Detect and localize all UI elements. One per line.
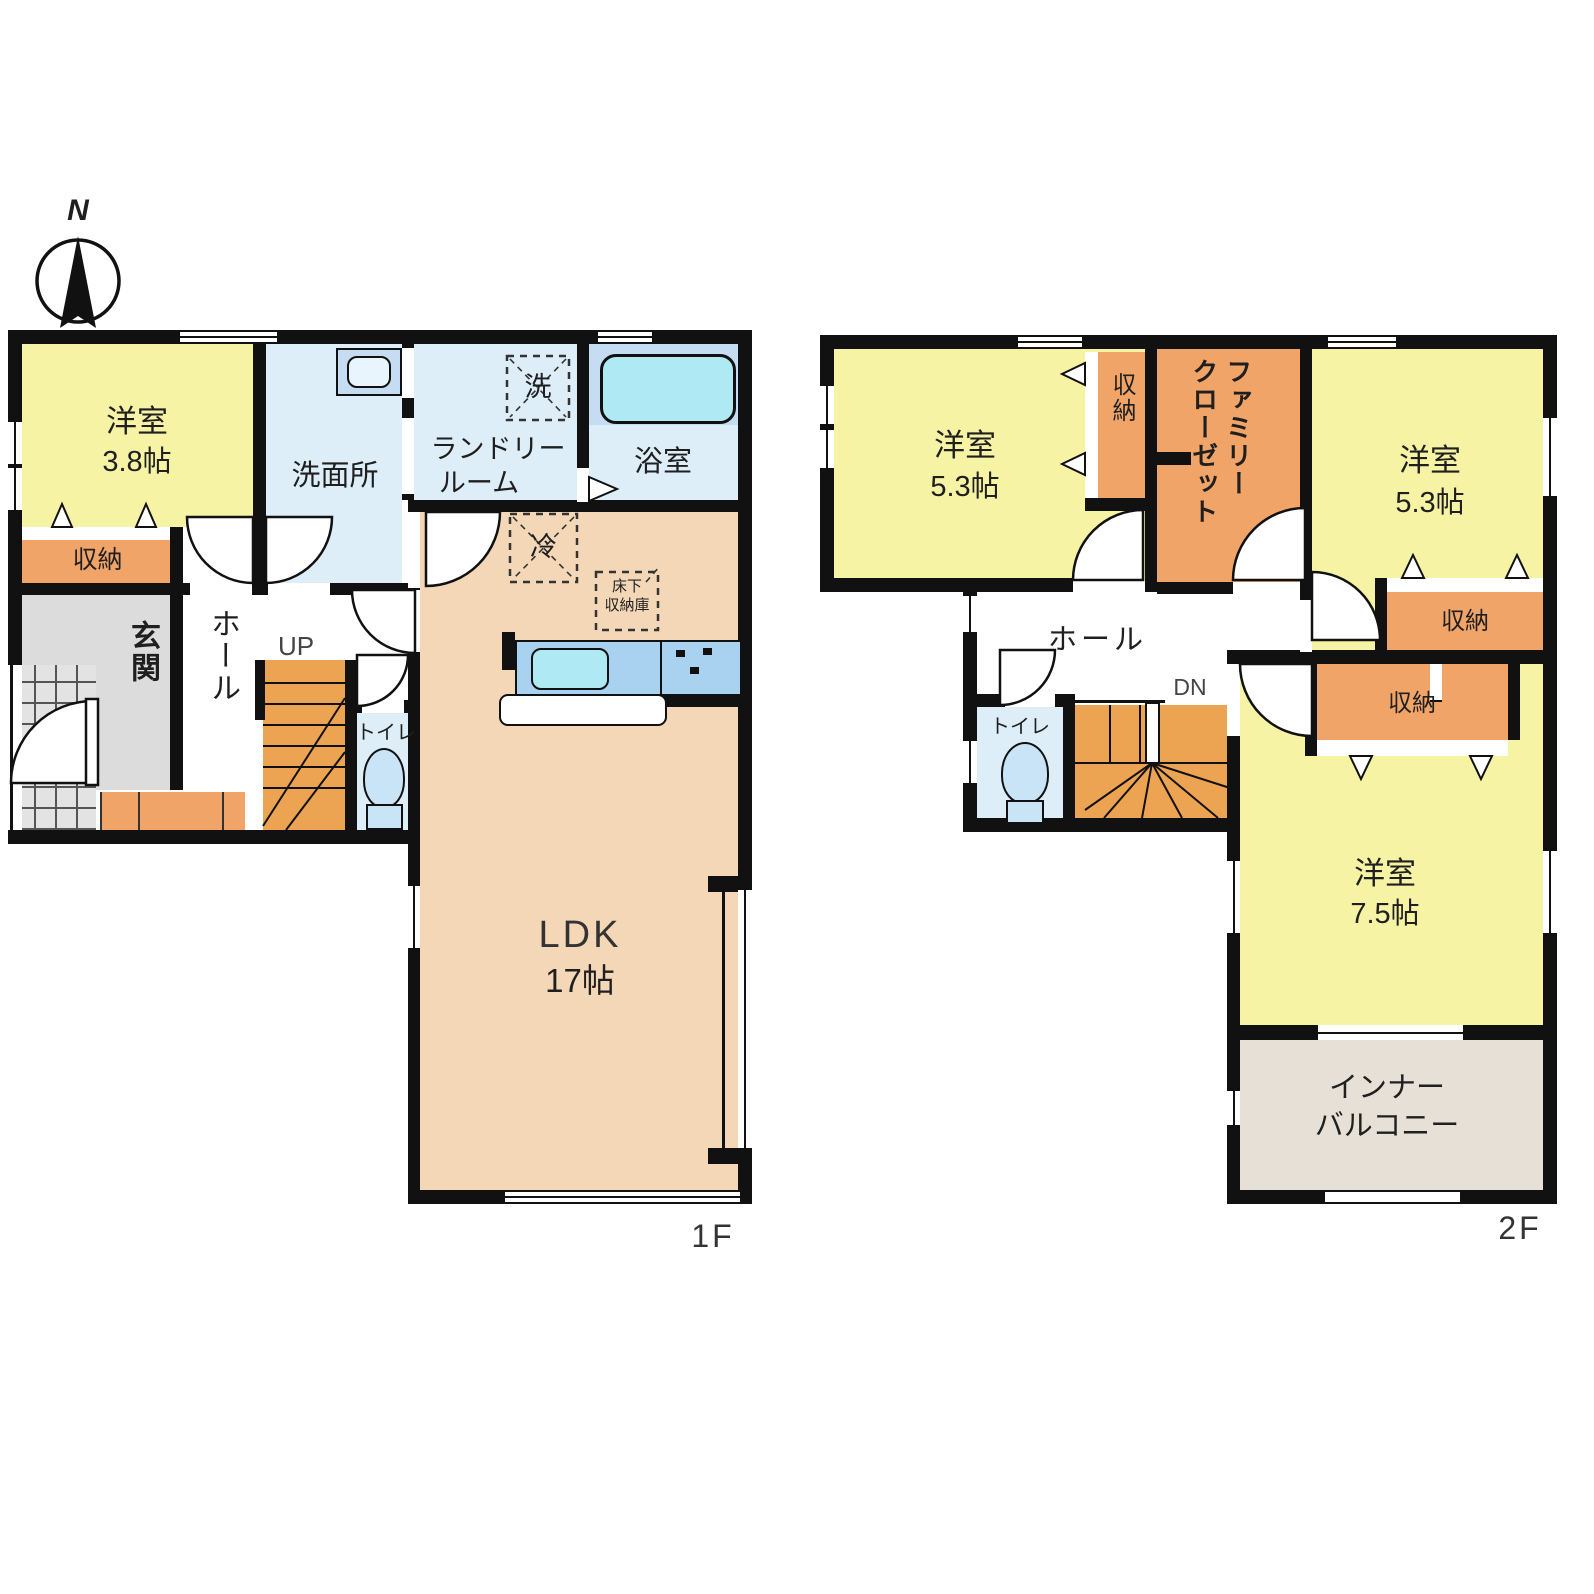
label-washer-box: 洗 [512,372,564,403]
label-stairs-up: UP [266,632,326,662]
label-underfloor-2: 収納庫 [598,597,656,614]
label-balcony-1: インナー [1282,1072,1492,1105]
label-storage-1f: 収納 [40,546,155,575]
label-floor-1f: 1F [668,1218,758,1255]
toilet-bowl-1f [363,748,405,808]
label-toilet-2f: トイレ [990,716,1048,739]
kitchen-island-counter [499,694,667,726]
toilet-tank-1f [366,804,403,830]
label-western-53R-size: 5.3帖 [1345,487,1515,520]
label-western-3_8-size: 3.8帖 [57,446,217,479]
label-western-3_8-name: 洋室 [57,404,217,440]
label-entrance: 玄関 [120,620,164,730]
label-balcony-2: バルコニー [1282,1110,1492,1143]
stove-burner [690,667,699,674]
label-bathroom: 浴室 [615,446,711,479]
label-storage-2f-right: 収納 [1405,608,1525,636]
label-western-53L-size: 5.3帖 [880,471,1050,504]
label-washroom: 洗面所 [270,460,400,493]
label-ldk-size: 17帖 [490,962,670,1000]
compass-north-label: N [60,194,96,229]
compass-icon [37,236,119,328]
symbol-overlay [0,0,1594,1594]
label-western-53L-name: 洋室 [880,428,1050,464]
toilet-bowl-2f [1001,742,1049,804]
kitchen-sink [531,648,609,690]
label-western-75-name: 洋室 [1300,856,1470,892]
stove-burner [703,648,712,655]
label-hall-1f: ホール [200,608,244,783]
label-hall-2f: ホール [1030,624,1165,657]
label-western-53R-name: 洋室 [1345,443,1515,479]
label-floor-2f: 2F [1475,1210,1565,1247]
label-family-closet: ファミリー クローゼット [1186,358,1254,578]
label-stairs-down: DN [1162,674,1218,700]
washstand-bowl [347,356,391,388]
stairs-2f-rail [1146,703,1159,763]
toilet-tank-2f [1006,800,1044,824]
stairs-1f-treads [263,683,345,830]
label-storage-2f-mid: 収納 [1352,690,1472,718]
label-fridge-box: 冷 [516,532,571,563]
stove-burner [676,650,685,657]
label-western-75-size: 7.5帖 [1300,898,1470,931]
label-laundry-2: ルーム [424,468,534,499]
kitchen-divider [660,640,662,696]
floorplan-canvas: N 洋室 3.8帖 収納 洗面所 ランドリー ルーム 洗 浴室 冷 床下 収納庫… [0,0,1594,1594]
label-ldk-name: LDK [490,914,670,958]
bathtub [600,354,736,424]
label-storage-2f-top: 収納 [1104,372,1139,482]
label-toilet-1f: トイレ [356,722,410,745]
label-underfloor-1: 床下 [598,578,656,595]
label-laundry-1: ランドリー [428,434,568,465]
